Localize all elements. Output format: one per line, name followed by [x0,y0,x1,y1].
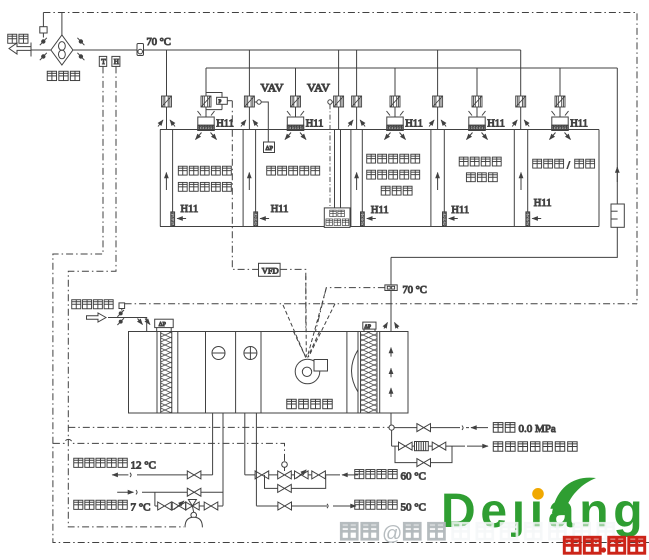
svg-text:H11: H11 [271,204,289,215]
svg-text:ΔP: ΔP [159,322,167,328]
svg-text:P: P [219,100,222,105]
svg-text:ΔP: ΔP [364,324,371,330]
svg-text:H11: H11 [451,205,469,216]
svg-text:H11: H11 [534,198,552,209]
svg-text:70 °C: 70 °C [403,285,427,296]
svg-text:7 °C: 7 °C [131,502,151,514]
svg-text:12 °C: 12 °C [131,460,157,472]
svg-text:H11: H11 [570,119,588,130]
svg-text:50 °C: 50 °C [401,502,427,514]
svg-text:VFD: VFD [262,266,279,276]
svg-text:VAV: VAV [261,81,284,95]
svg-text:H11: H11 [405,119,423,130]
svg-text:H11: H11 [181,204,199,215]
svg-text:H11: H11 [371,205,389,216]
svg-text:H11: H11 [306,119,324,130]
svg-text:VAV: VAV [307,81,330,95]
svg-text:ΔP: ΔP [266,145,274,152]
svg-text:70 °C: 70 °C [147,37,171,48]
svg-text:/: / [567,161,570,172]
svg-text:H: H [114,58,119,66]
svg-text:0.0 MPa: 0.0 MPa [519,423,556,435]
svg-text:@: @ [382,523,402,545]
svg-text:H11: H11 [487,119,505,130]
svg-text:60 °C: 60 °C [401,470,427,482]
svg-text:T: T [101,58,106,66]
svg-text:H11: H11 [216,119,234,130]
